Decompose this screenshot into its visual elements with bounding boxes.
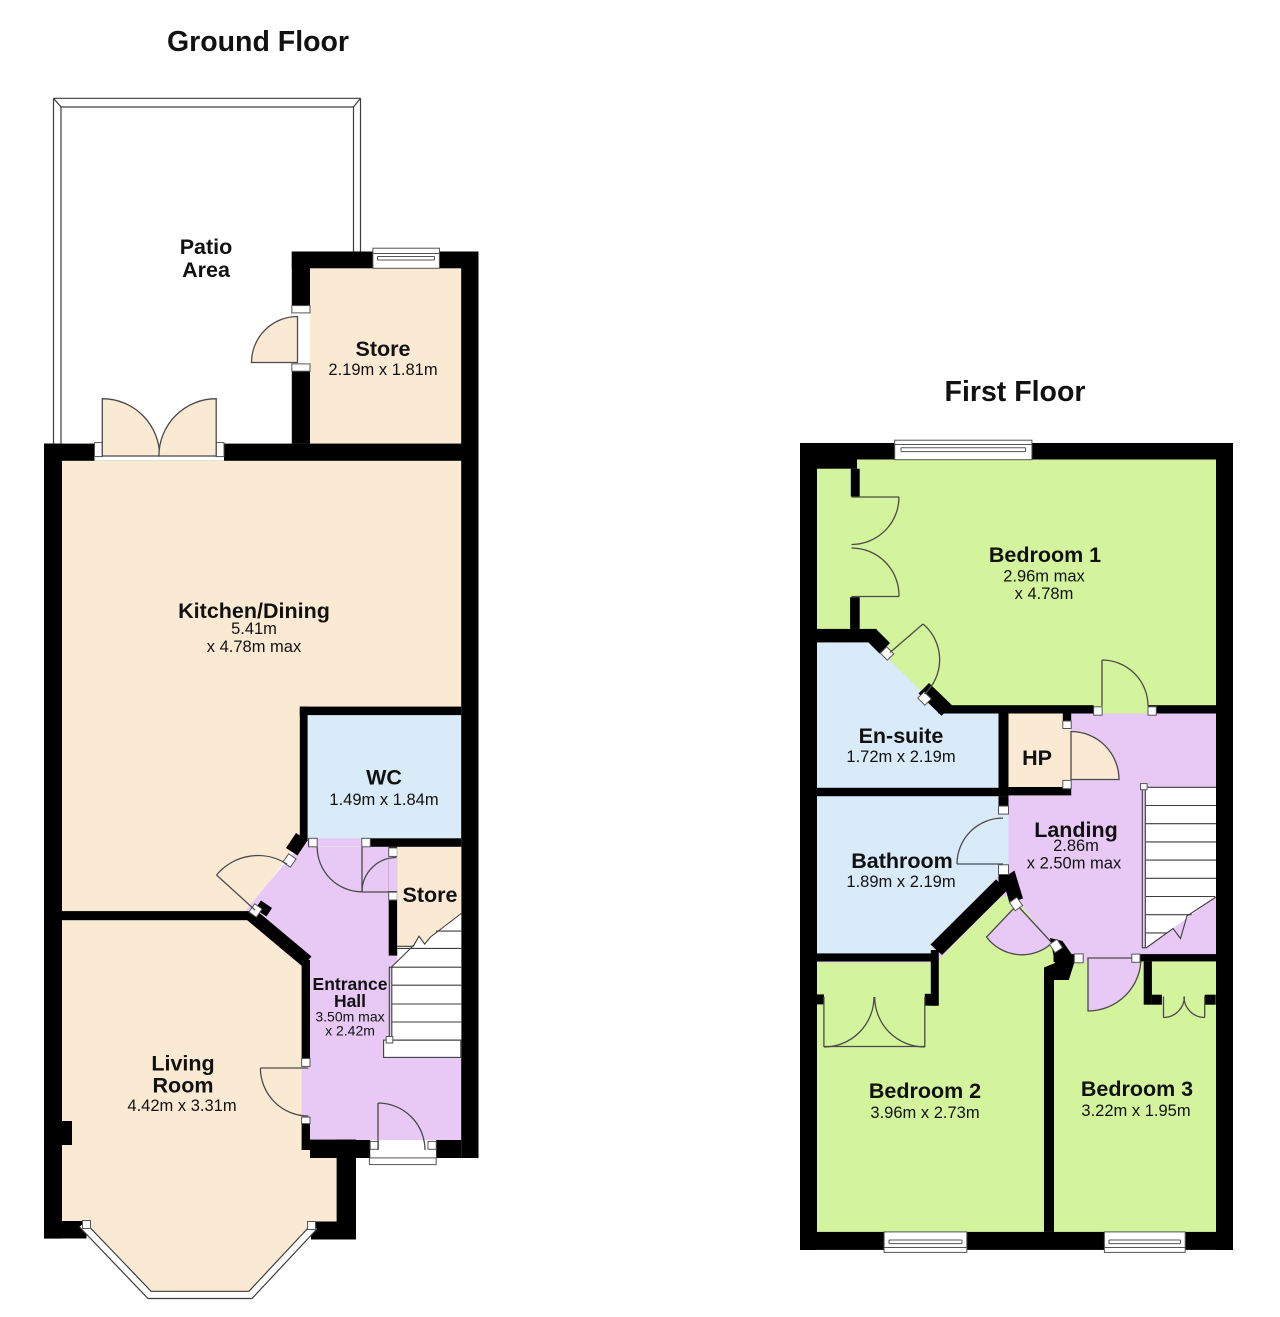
svg-text:First Floor: First Floor (945, 376, 1086, 408)
svg-text:x 2.50m max: x 2.50m max (1027, 855, 1122, 873)
svg-text:Store: Store (403, 883, 458, 907)
svg-text:5.41m: 5.41m (231, 620, 277, 638)
svg-text:4.42m x 3.31m: 4.42m x 3.31m (127, 1097, 236, 1115)
svg-text:Store: Store (356, 337, 411, 361)
svg-text:Bedroom 1: Bedroom 1 (989, 543, 1101, 567)
svg-text:HP: HP (1022, 746, 1052, 770)
svg-text:3.22m x 1.95m: 3.22m x 1.95m (1081, 1102, 1190, 1120)
svg-text:x 4.78m max: x 4.78m max (207, 638, 302, 656)
svg-text:Bathroom: Bathroom (851, 849, 953, 873)
svg-text:Ground Floor: Ground Floor (167, 26, 349, 58)
svg-text:x 2.42m: x 2.42m (325, 1023, 375, 1039)
svg-text:En-suite: En-suite (859, 724, 944, 748)
svg-text:Patio: Patio (180, 235, 233, 259)
svg-text:1.72m x 2.19m: 1.72m x 2.19m (846, 748, 955, 766)
svg-text:Bedroom 3: Bedroom 3 (1081, 1077, 1193, 1101)
svg-text:Room: Room (153, 1074, 214, 1098)
svg-text:1.89m x 2.19m: 1.89m x 2.19m (846, 873, 955, 891)
svg-text:1.49m x 1.84m: 1.49m x 1.84m (329, 791, 438, 809)
svg-text:2.19m x 1.81m: 2.19m x 1.81m (328, 361, 437, 379)
svg-text:2.86m: 2.86m (1053, 837, 1099, 855)
svg-text:x 4.78m: x 4.78m (1015, 585, 1074, 603)
svg-text:Area: Area (182, 258, 231, 282)
svg-text:3.96m x 2.73m: 3.96m x 2.73m (870, 1104, 979, 1122)
svg-text:Bedroom 2: Bedroom 2 (869, 1079, 981, 1103)
svg-text:Living: Living (151, 1052, 214, 1076)
svg-text:2.96m max: 2.96m max (1003, 568, 1085, 586)
svg-text:WC: WC (366, 766, 402, 790)
